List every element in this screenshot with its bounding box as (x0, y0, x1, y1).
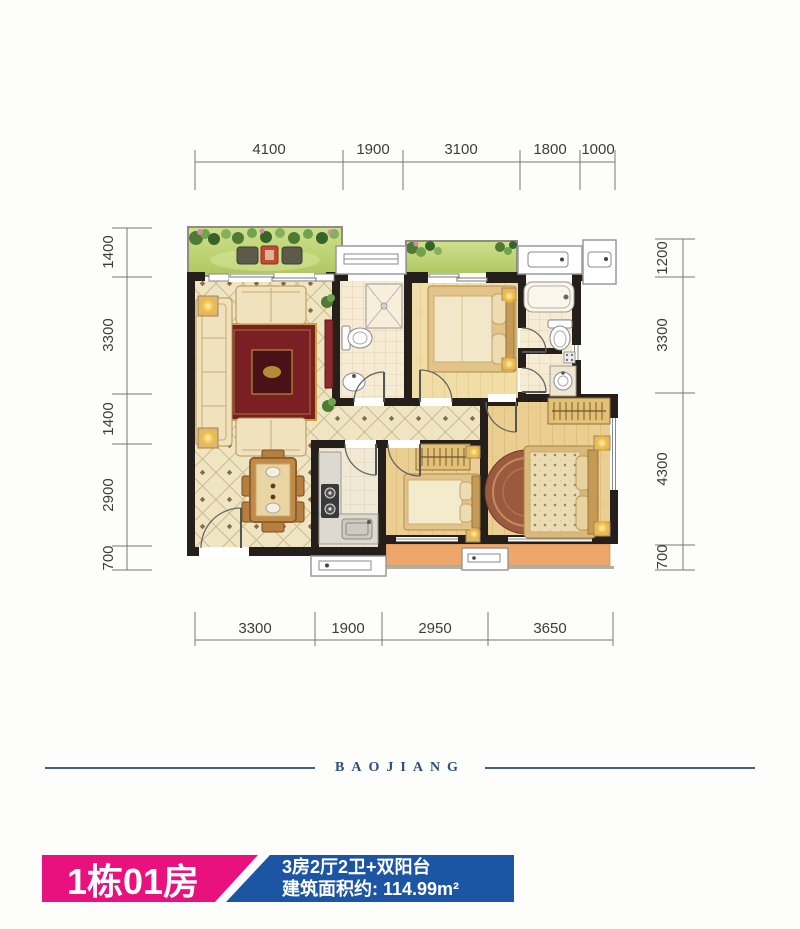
unit-label: 1栋01房 (67, 853, 199, 905)
dim-left-5: 700 (100, 545, 117, 570)
dim-top-4: 1800 (533, 141, 566, 158)
dim-line-left (112, 228, 152, 570)
bedside-lamp (593, 434, 611, 452)
dim-bottom-2: 1900 (331, 620, 364, 637)
divider-line (485, 767, 755, 769)
unit-label-ribbon: 1栋01房 (42, 855, 258, 902)
dim-top-2: 1900 (356, 141, 389, 158)
dim-right-2: 3300 (654, 318, 671, 351)
brand-name: BAOJIANG (335, 760, 465, 776)
unit-info-ribbon: 3房2厅2卫+双阳台 建筑面积约: 114.99m² (226, 855, 514, 902)
balcony-north-living (188, 227, 342, 276)
dim-top-3: 3100 (444, 141, 477, 158)
area-label: 建筑面积约: 114.99m² (282, 879, 514, 901)
dim-bottom-1: 3300 (238, 620, 271, 637)
dim-right-3: 4300 (654, 452, 671, 485)
bedside-lamp (467, 527, 481, 541)
bedroom-north-furniture (428, 286, 517, 372)
bedroom-south-furniture (404, 444, 481, 542)
balcony-chair (237, 247, 258, 264)
balcony-north-bedroom (406, 241, 517, 275)
dim-right-4: 700 (654, 544, 671, 569)
floor-lamp (198, 296, 218, 316)
dining-furniture (242, 450, 304, 532)
dim-left-3: 1400 (100, 402, 117, 435)
floor-lamp (198, 428, 218, 448)
bedside-lamp (501, 356, 517, 372)
dim-bottom-4: 3650 (533, 620, 566, 637)
floor-drain (564, 352, 575, 363)
tv-cabinet (325, 320, 333, 388)
dim-top-1: 4100 (252, 141, 285, 158)
bedside-lamp (501, 288, 517, 304)
balcony-chair (282, 247, 302, 264)
floorplan-page: 4100 1900 3100 1800 1000 1400 3300 1400 … (0, 0, 800, 929)
dim-top-5: 1000 (581, 141, 614, 158)
dim-left-4: 2900 (100, 478, 117, 511)
dim-left-1: 1400 (100, 235, 117, 268)
layout-label: 3房2厅2卫+双阳台 (282, 857, 514, 879)
dim-bottom-3: 2950 (418, 620, 451, 637)
brand-divider: BAOJIANG (45, 756, 755, 780)
dim-right-1: 1200 (654, 241, 671, 274)
bedside-lamp (467, 445, 481, 459)
divider-line (45, 767, 315, 769)
bedside-lamp (593, 519, 611, 537)
dim-line-right (655, 239, 695, 570)
floor-plan: 4100 1900 3100 1800 1000 1400 3300 1400 … (0, 0, 800, 700)
dim-left-2: 3300 (100, 318, 117, 351)
